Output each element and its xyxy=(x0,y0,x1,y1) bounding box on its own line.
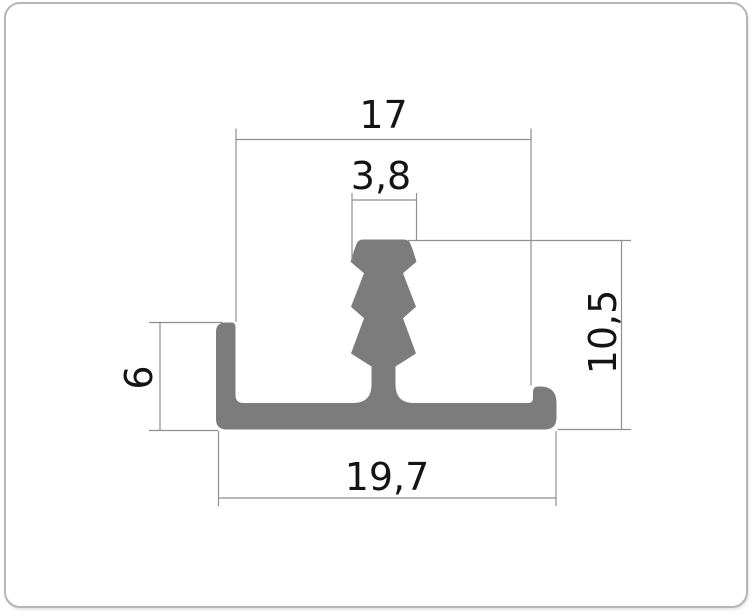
dim-label-bottom-width: 19,7 xyxy=(345,455,430,499)
screenshot-stage: 17 3,8 10,5 6 19,7 xyxy=(0,0,755,616)
dim-label-top-width: 17 xyxy=(359,93,407,137)
dim-label-barb-width: 3,8 xyxy=(351,154,411,198)
dim-label-left-height: 6 xyxy=(117,365,161,389)
profile-cross-section-drawing: 17 3,8 10,5 6 19,7 xyxy=(0,0,755,616)
dim-label-right-height: 10,5 xyxy=(581,290,625,375)
profile-shape xyxy=(216,240,557,430)
